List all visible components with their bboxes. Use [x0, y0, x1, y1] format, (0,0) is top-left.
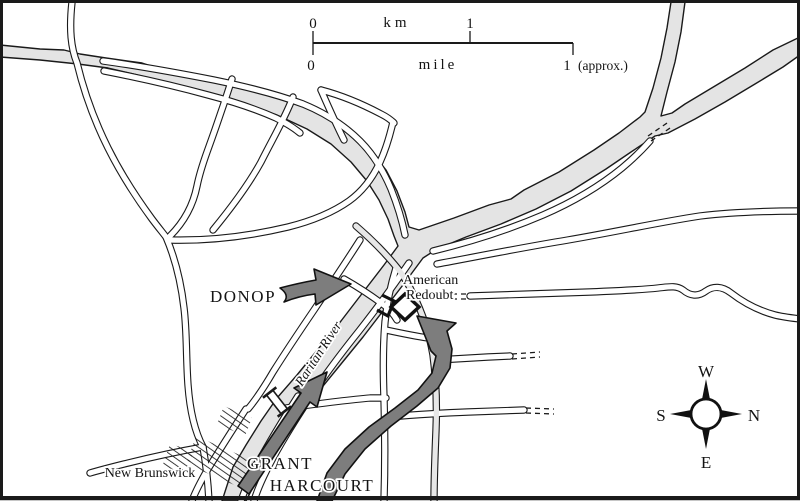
compass-west: W: [698, 362, 715, 381]
battle-map-svg: DONOP GRANT HARCOURT American Redoubt Ne…: [0, 0, 800, 501]
american-redoubt-label-line2: Redoubt: [406, 288, 454, 303]
new-brunswick-label: New Brunswick: [105, 466, 196, 481]
scale-mile-label: mile: [419, 57, 458, 73]
compass-north: N: [748, 406, 760, 425]
scale-km-one: 1: [466, 16, 474, 32]
battle-map: DONOP GRANT HARCOURT American Redoubt Ne…: [0, 0, 800, 501]
scale-mile-one: 1: [563, 58, 571, 74]
scale-mile-zero: 0: [307, 58, 315, 74]
harcourt-label: HARCOURT: [270, 476, 375, 495]
compass-east: E: [701, 453, 711, 472]
scale-km-label: km: [383, 15, 410, 31]
donop-label: DONOP: [210, 287, 276, 306]
scale-approx: (approx.): [578, 58, 628, 73]
american-redoubt-label-line1: American: [403, 273, 458, 288]
scale-km-zero: 0: [309, 16, 317, 32]
grant-label: GRANT: [247, 454, 313, 473]
compass-south: S: [656, 406, 665, 425]
